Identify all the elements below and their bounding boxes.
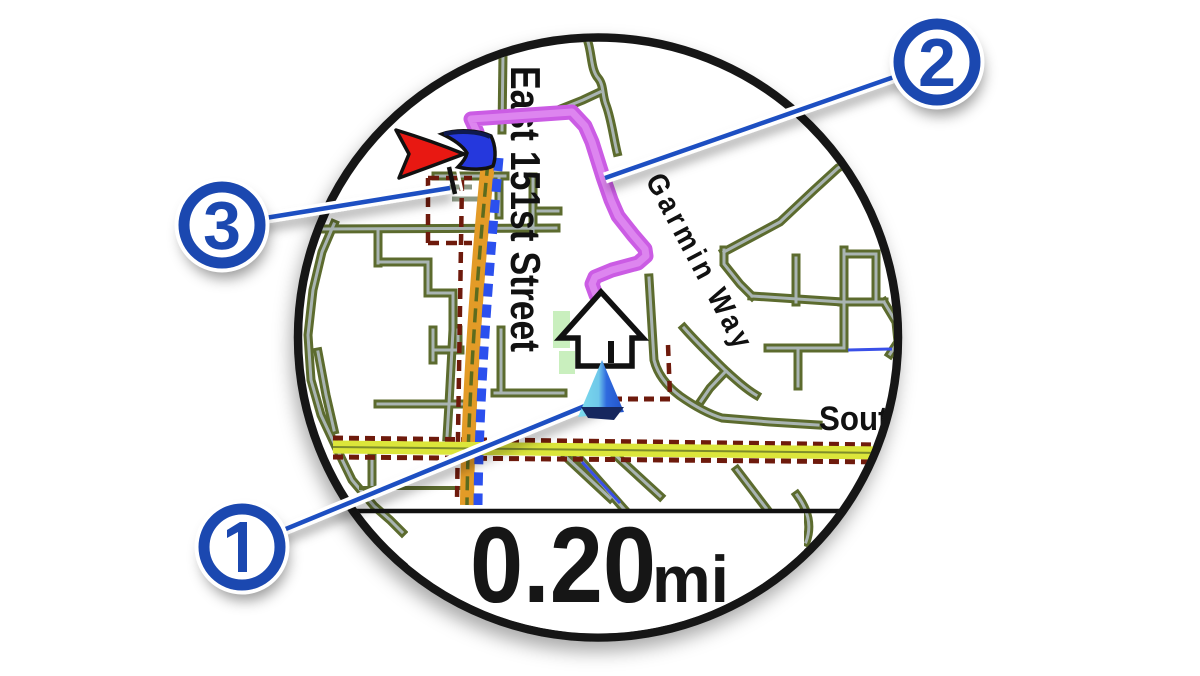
svg-text:Sout: Sout bbox=[819, 400, 889, 438]
svg-text:3: 3 bbox=[203, 188, 241, 264]
svg-text:0.20: 0.20 bbox=[470, 504, 656, 625]
svg-text:mi: mi bbox=[652, 542, 729, 616]
svg-text:2: 2 bbox=[918, 25, 956, 101]
